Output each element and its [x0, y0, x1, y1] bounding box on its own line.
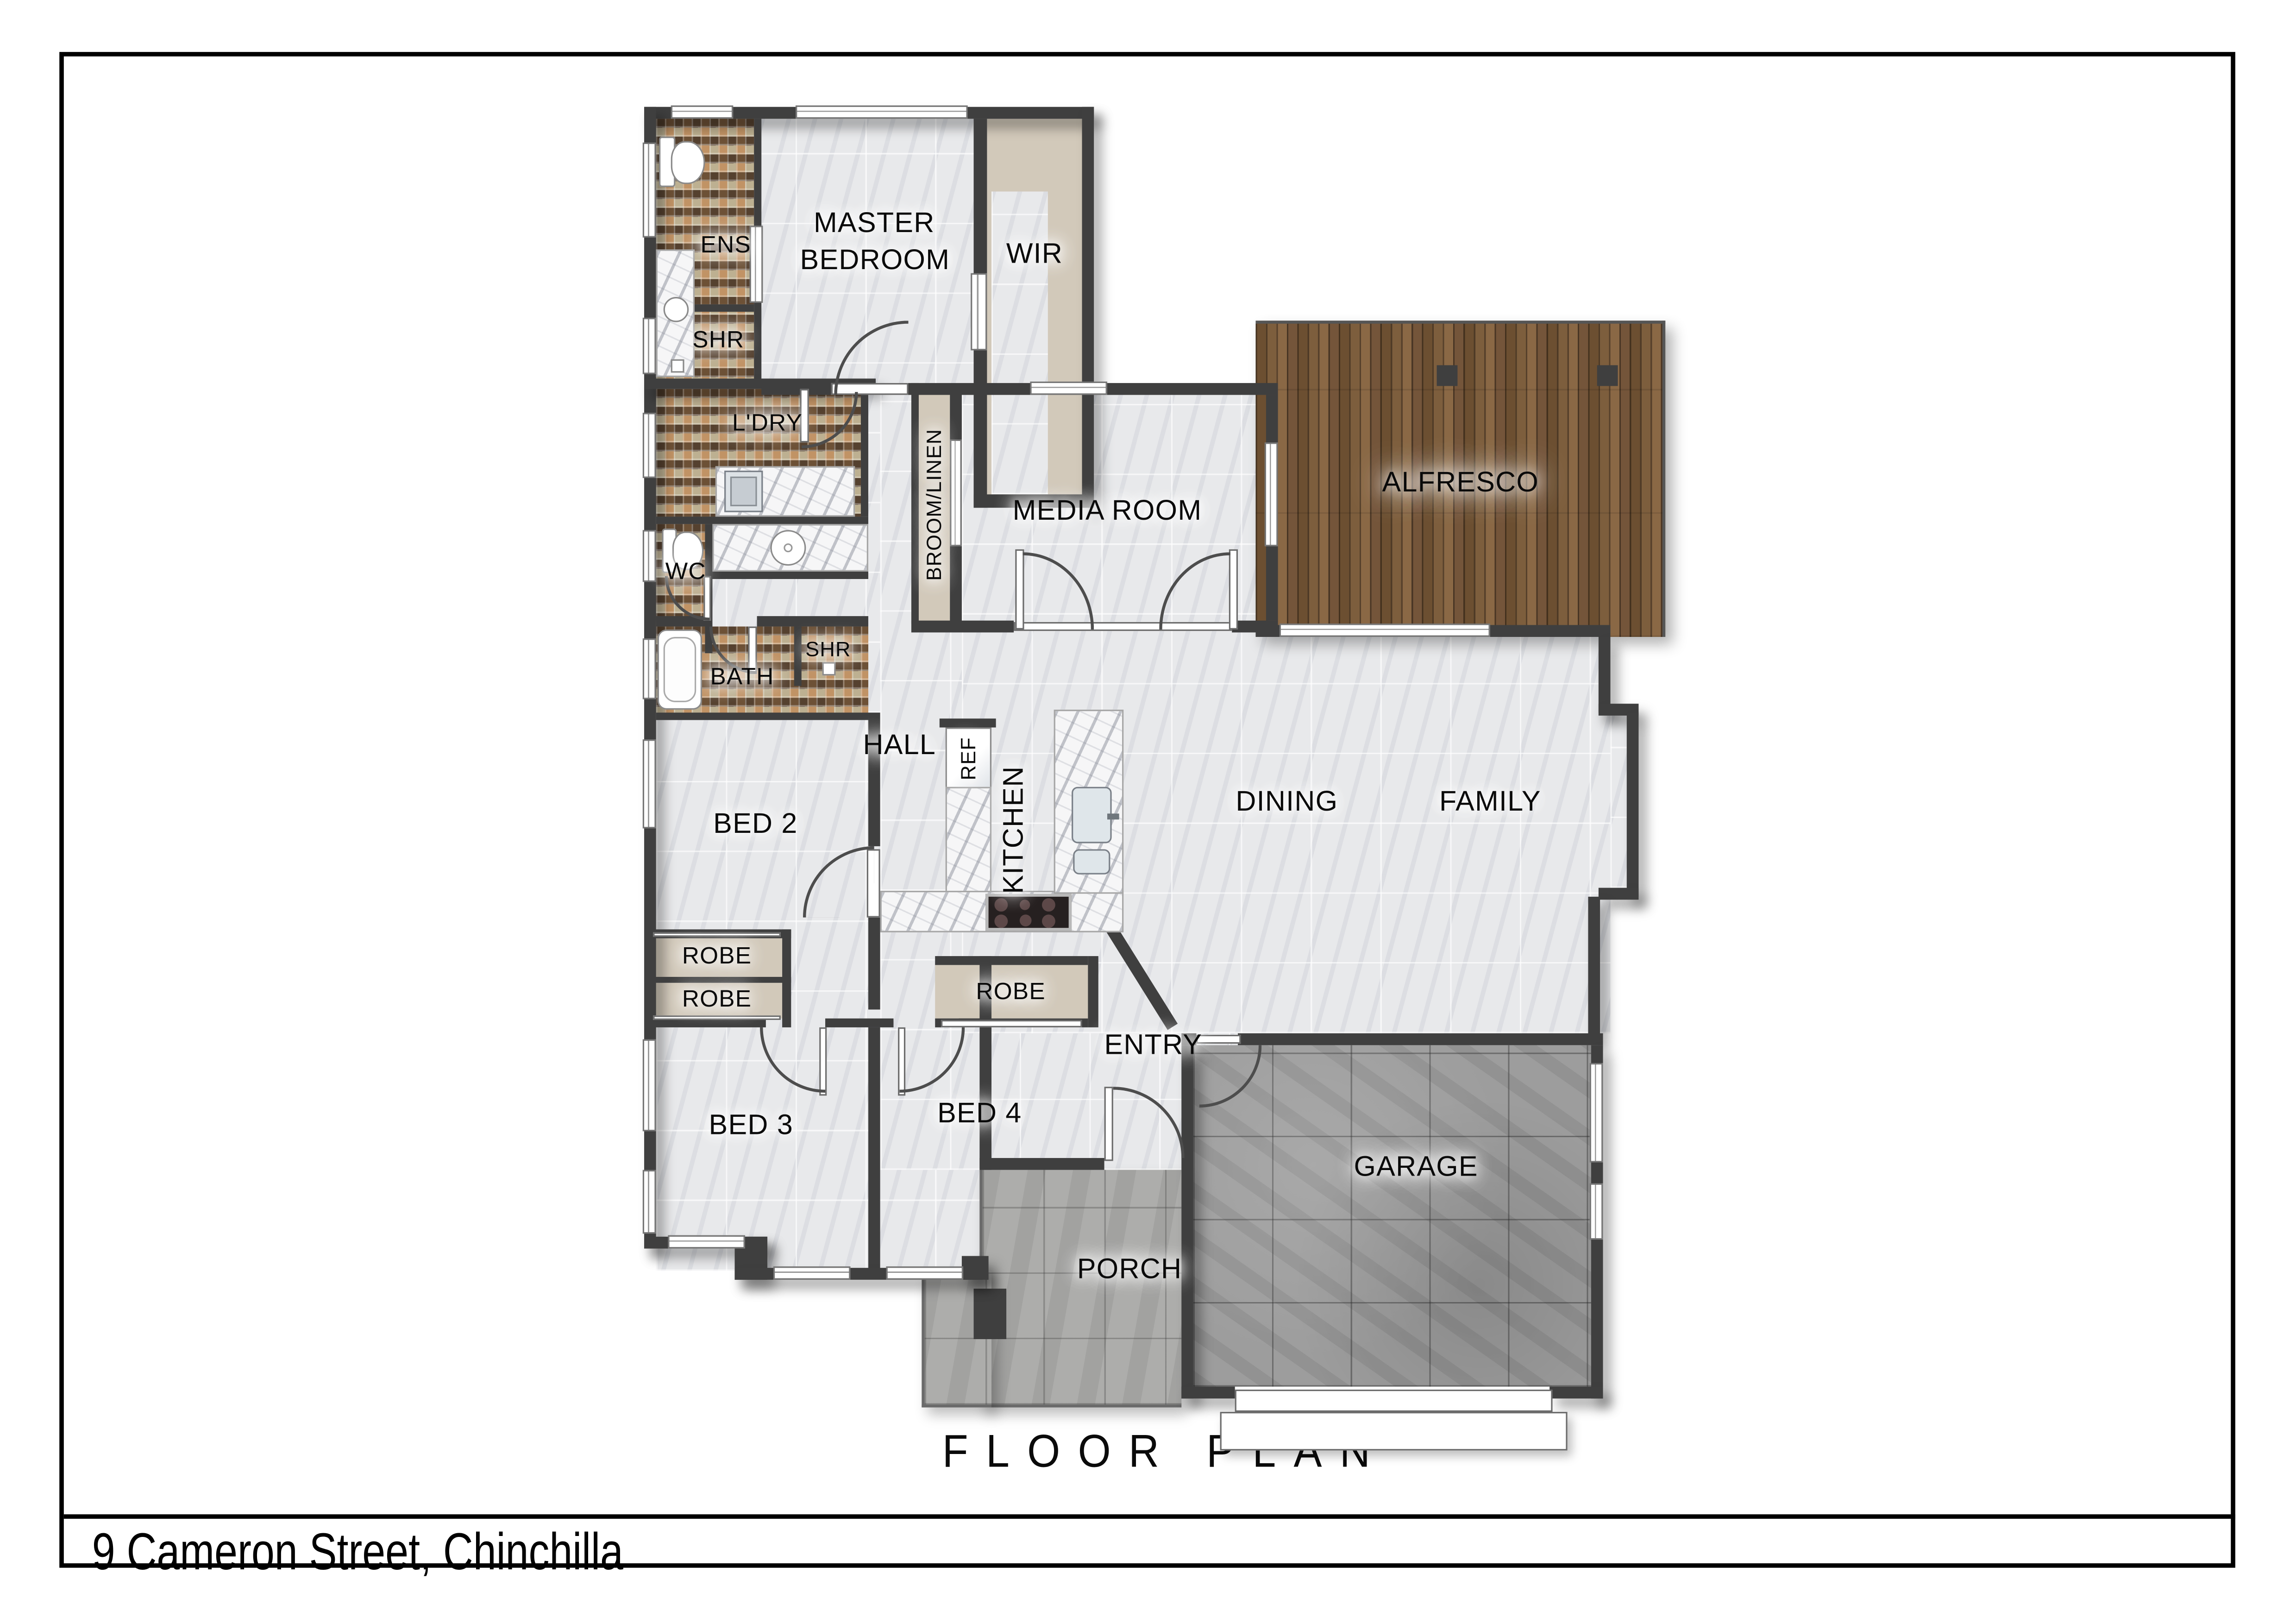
robe-door-track	[653, 1015, 781, 1020]
label-ens: ENS	[701, 233, 751, 260]
burner	[994, 898, 1008, 912]
burner	[1042, 914, 1055, 928]
laundry-sink-bowl	[730, 477, 757, 506]
porch-pillar	[974, 1289, 1007, 1339]
label-robe2: ROBE	[682, 987, 752, 1014]
address-text: 9 Cameron Street, Chinchilla	[92, 1523, 623, 1582]
shower-head	[822, 662, 836, 675]
label-bath: BATH	[710, 665, 774, 692]
wall	[1549, 1387, 1603, 1399]
window	[1590, 1063, 1603, 1163]
label-hall: HALL	[863, 730, 936, 763]
linen-slider	[950, 440, 962, 547]
burner	[1042, 898, 1055, 912]
window	[671, 106, 734, 119]
kitchen-sink	[1073, 849, 1110, 874]
bathtub-inner	[664, 637, 696, 702]
wall	[782, 929, 791, 1027]
wall	[911, 389, 919, 623]
label-robe3: ROBE	[976, 980, 1045, 1007]
wall	[868, 1027, 880, 1271]
label-broom-linen: BROOM/LINEN	[922, 429, 945, 581]
floor-porch	[979, 1170, 1181, 1408]
window	[1030, 382, 1107, 395]
window	[643, 530, 656, 582]
wall	[644, 977, 791, 983]
wall	[1627, 712, 1639, 896]
label-robe1: ROBE	[682, 944, 752, 971]
floor-plan-page: 9 Cameron Street, Chinchilla FLOOR PLAN	[0, 0, 2296, 1624]
label-wc: WC	[665, 560, 706, 586]
label-media-room: MEDIA ROOM	[1013, 496, 1202, 529]
wall	[1238, 1033, 1603, 1045]
robe-door-track	[653, 932, 781, 937]
window	[643, 1170, 656, 1234]
sliding-door	[1280, 623, 1490, 637]
wall	[757, 616, 868, 626]
wall	[1082, 107, 1094, 508]
window	[643, 143, 656, 238]
wall	[1599, 888, 1639, 900]
wall	[1181, 1045, 1193, 1398]
label-bed4: BED 4	[937, 1099, 1022, 1132]
label-entry: ENTRY	[1104, 1030, 1202, 1063]
wall	[940, 718, 996, 727]
floor-family-bay	[1611, 716, 1627, 888]
wall	[979, 1158, 1104, 1170]
label-porch: PORCH	[1077, 1254, 1182, 1287]
wall	[656, 712, 868, 720]
basin	[664, 297, 689, 322]
cavity-slider	[971, 273, 987, 351]
window	[1265, 442, 1278, 546]
front-door-leaf	[1104, 1087, 1113, 1161]
floor-wir	[991, 191, 1048, 494]
wall	[911, 621, 1014, 633]
wall	[712, 572, 868, 579]
cavity-slider	[750, 226, 763, 303]
label-alfresco: ALFRESCO	[1382, 468, 1539, 501]
wall	[1599, 637, 1611, 712]
wall	[861, 389, 868, 517]
floor-garage	[1193, 1045, 1591, 1386]
window	[643, 413, 656, 478]
toilet	[671, 141, 705, 184]
garage-door-panel	[1235, 1390, 1553, 1412]
label-shr-ens: SHR	[692, 328, 744, 355]
wall	[794, 627, 802, 686]
window	[773, 1266, 851, 1280]
window	[668, 1235, 745, 1249]
robe-door-track	[941, 1020, 1082, 1027]
faucet	[1107, 813, 1119, 819]
label-family: FAMILY	[1439, 787, 1541, 820]
window	[643, 1039, 656, 1132]
kitchen-counter	[946, 787, 991, 894]
window	[643, 318, 656, 374]
window	[1590, 1183, 1603, 1240]
garage-door-panel	[1220, 1412, 1568, 1450]
label-bed3: BED 3	[709, 1110, 793, 1143]
deck-post	[1437, 365, 1458, 386]
label-shr-bath: SHR	[805, 637, 851, 661]
wall	[656, 516, 868, 524]
wall	[935, 956, 1088, 965]
footer-divider	[64, 1514, 2235, 1519]
window	[886, 1266, 963, 1280]
label-kitchen: KITCHEN	[999, 766, 1032, 894]
wall	[825, 1019, 893, 1027]
label-wir: WIR	[1006, 239, 1063, 272]
wall	[1088, 956, 1098, 1027]
deck-post	[1597, 365, 1618, 386]
wall	[962, 1256, 989, 1280]
shower-head	[671, 359, 684, 373]
burner	[1020, 914, 1032, 926]
window	[796, 106, 968, 119]
burner	[1020, 900, 1030, 910]
label-master-bedroom: MASTER BEDROOM	[800, 207, 949, 280]
wall	[1588, 897, 1600, 1042]
label-dining: DINING	[1236, 787, 1338, 820]
label-bed2: BED 2	[713, 809, 797, 842]
burner	[994, 914, 1008, 928]
wall	[1181, 1387, 1235, 1399]
label-garage: GARAGE	[1354, 1152, 1478, 1185]
wall	[868, 918, 880, 1010]
kitchen-sink	[1072, 787, 1112, 843]
label-ldry: L'DRY	[732, 411, 803, 438]
window	[643, 638, 656, 699]
window	[643, 739, 656, 828]
door-leaf	[1196, 1035, 1241, 1044]
label-ref: REF	[956, 737, 979, 781]
basin-drain	[784, 543, 792, 552]
